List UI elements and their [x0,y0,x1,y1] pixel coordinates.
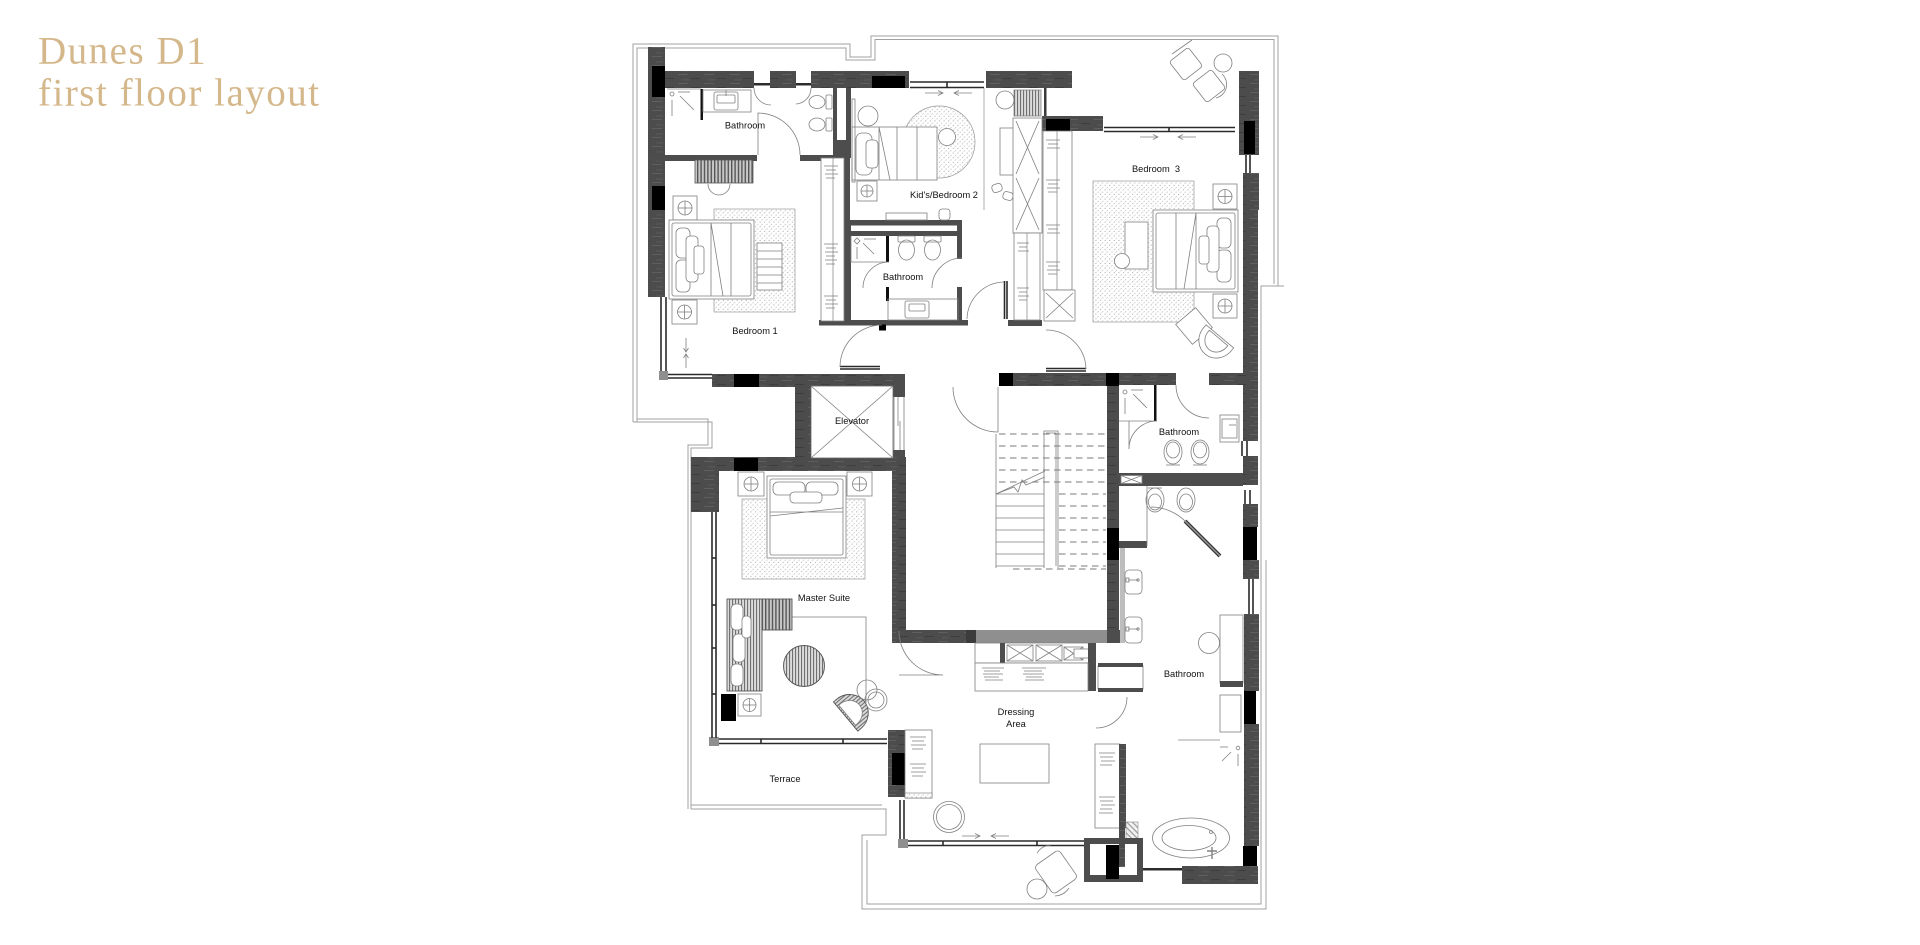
svg-text:Bathroom: Bathroom [1159,427,1200,437]
svg-text:Elevator: Elevator [835,416,869,426]
svg-text:Master Suite: Master Suite [798,593,850,603]
svg-text:Dunes D1: Dunes D1 [38,30,207,73]
svg-text:Bathroom: Bathroom [883,272,924,282]
svg-text:Bathroom: Bathroom [725,121,766,131]
svg-text:Bedroom 1: Bedroom 1 [732,326,777,336]
svg-text:Terrace: Terrace [770,774,801,784]
svg-text:Kid's/Bedroom 2: Kid's/Bedroom 2 [910,190,978,200]
svg-text:Area: Area [1006,719,1026,729]
svg-text:Bedroom 3: Bedroom 3 [1132,164,1180,174]
svg-text:Bathroom: Bathroom [1164,669,1205,679]
svg-text:Dressing: Dressing [998,707,1035,717]
svg-text:first floor layout: first floor layout [38,72,321,115]
